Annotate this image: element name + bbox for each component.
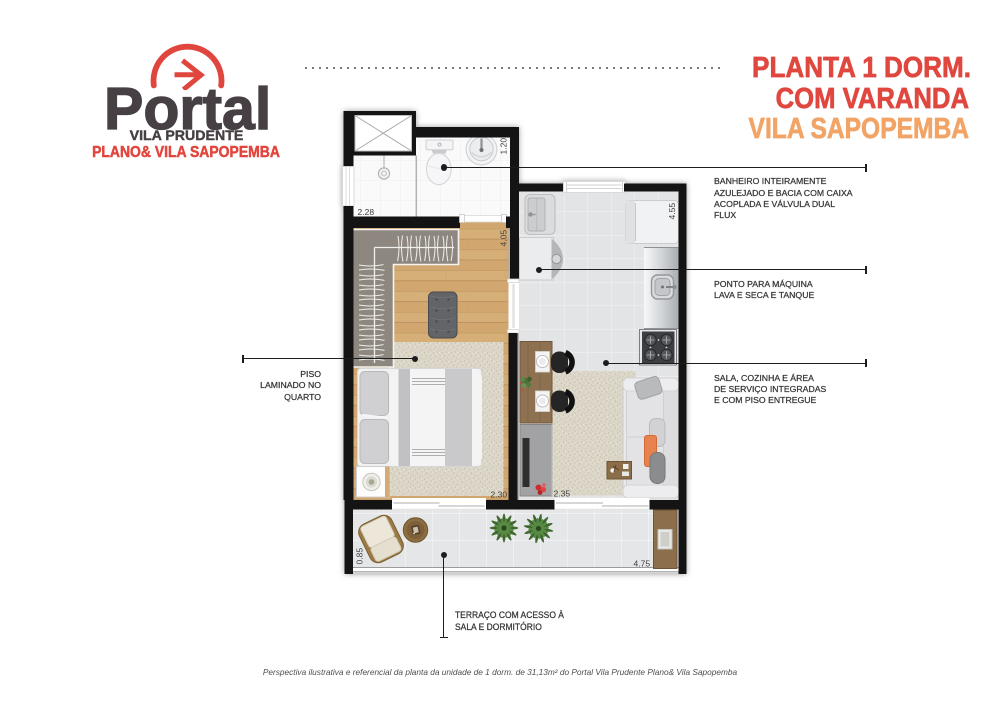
svg-text:2.30: 2.30	[491, 490, 508, 500]
svg-text:4.75: 4.75	[634, 559, 651, 569]
svg-text:2.28: 2.28	[358, 207, 375, 217]
svg-text:4.05: 4.05	[499, 230, 509, 247]
svg-text:1.20: 1.20	[498, 138, 508, 155]
svg-text:4.55: 4.55	[667, 203, 677, 220]
svg-text:0.85: 0.85	[354, 548, 364, 565]
svg-text:2.35: 2.35	[554, 489, 571, 499]
